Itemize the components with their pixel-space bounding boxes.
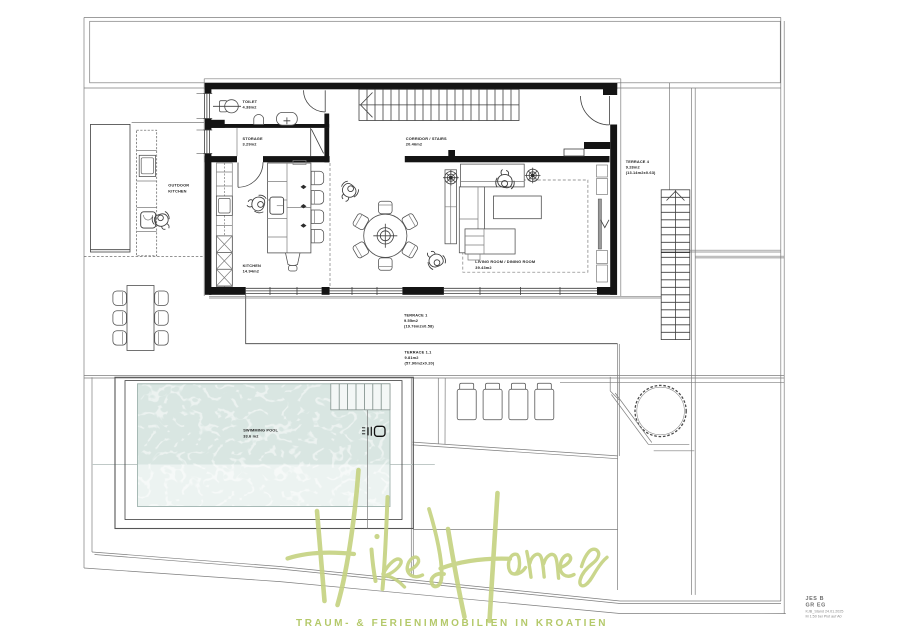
svg-text:20.46m2: 20.46m2 — [406, 142, 423, 147]
svg-text:(19.76m2x0.58): (19.76m2x0.58) — [404, 324, 434, 329]
svg-text:TERRACE 4: TERRACE 4 — [626, 159, 650, 164]
svg-text:4.38m2: 4.38m2 — [243, 105, 258, 110]
svg-text:JES B: JES B — [806, 596, 825, 602]
svg-text:39.43m2: 39.43m2 — [475, 265, 492, 270]
svg-text:GR EG: GR EG — [806, 603, 826, 609]
svg-text:9.81m2: 9.81m2 — [405, 355, 420, 360]
svg-text:M 1:50 bei Plot auf A0: M 1:50 bei Plot auf A0 — [806, 614, 842, 618]
svg-text:14.94m2: 14.94m2 — [243, 269, 260, 274]
svg-text:3.29m2: 3.29m2 — [243, 142, 258, 147]
svg-text:TERRACE 1.1: TERRACE 1.1 — [405, 350, 433, 355]
svg-text:KITCHEN: KITCHEN — [168, 188, 186, 193]
svg-text:(57.90m2x0.20): (57.90m2x0.20) — [405, 361, 435, 366]
svg-text:(13.14m2x0.63): (13.14m2x0.63) — [626, 170, 656, 175]
svg-text:9.28m2: 9.28m2 — [626, 165, 641, 170]
svg-text:TRAUM- & FERIENIMMOBILIEN IN K: TRAUM- & FERIENIMMOBILIEN IN KROATIEN — [296, 618, 608, 629]
svg-text:KITCHEN: KITCHEN — [243, 263, 261, 268]
svg-text:LIVING ROOM / DINING ROOM: LIVING ROOM / DINING ROOM — [475, 259, 535, 264]
svg-text:OUTDOOR: OUTDOOR — [168, 183, 189, 188]
svg-text:CORRIDOR / STAIRS: CORRIDOR / STAIRS — [406, 136, 447, 141]
svg-text:SWIMMING POOL: SWIMMING POOL — [243, 428, 278, 433]
svg-text:9.55m2: 9.55m2 — [404, 318, 419, 323]
svg-text:KJB_Stand 24.01.2025: KJB_Stand 24.01.2025 — [806, 610, 844, 614]
svg-text:33.6 m2: 33.6 m2 — [243, 433, 259, 438]
svg-text:STORAGE: STORAGE — [243, 136, 263, 141]
svg-text:TOILET: TOILET — [243, 99, 258, 104]
svg-text:TERRACE 1: TERRACE 1 — [404, 313, 428, 318]
